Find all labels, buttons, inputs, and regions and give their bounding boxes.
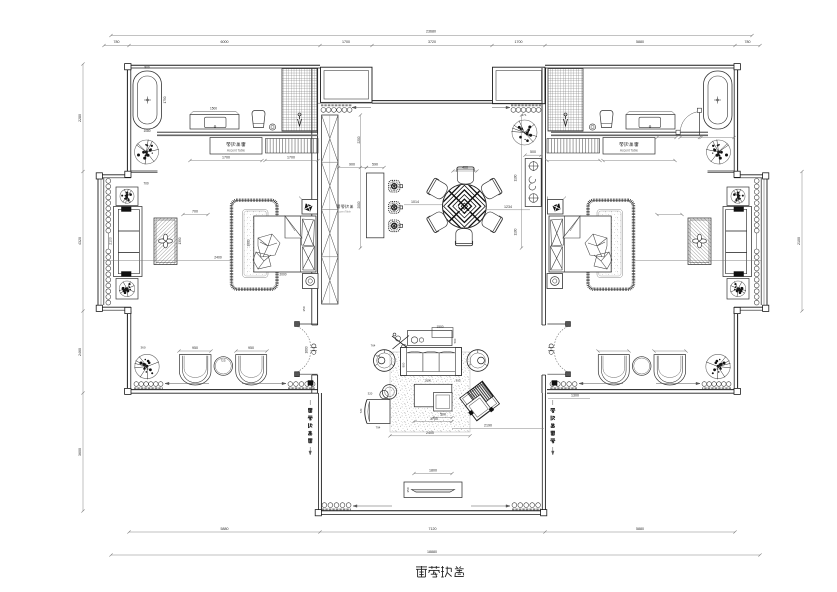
svg-text:6000: 6000	[221, 40, 229, 44]
svg-text:720: 720	[359, 408, 363, 413]
svg-text:360: 360	[140, 346, 145, 350]
svg-text:800: 800	[144, 66, 150, 70]
svg-text:950: 950	[248, 346, 254, 350]
svg-text:23680: 23680	[426, 30, 436, 34]
svg-text:2000: 2000	[279, 273, 286, 277]
svg-text:1500: 1500	[210, 107, 217, 111]
svg-text:2460: 2460	[78, 348, 82, 356]
svg-text:700: 700	[143, 182, 149, 186]
svg-text:1500: 1500	[436, 325, 443, 329]
svg-text:4320: 4320	[78, 237, 82, 245]
svg-text:1700: 1700	[515, 40, 523, 44]
svg-text:764: 764	[371, 344, 376, 348]
svg-text:Accent Table: Accent Table	[620, 149, 638, 153]
svg-text:1100: 1100	[514, 228, 518, 235]
svg-text:725: 725	[220, 359, 225, 363]
svg-text:18880: 18880	[427, 550, 437, 554]
svg-text:350: 350	[406, 487, 410, 492]
svg-text:500: 500	[453, 338, 457, 343]
svg-text:300: 300	[456, 379, 461, 383]
svg-text:5880: 5880	[221, 527, 229, 531]
svg-text:2100: 2100	[797, 237, 801, 245]
svg-text:1234: 1234	[504, 205, 512, 209]
svg-text:780: 780	[114, 40, 120, 44]
svg-text:1080: 1080	[143, 129, 150, 133]
svg-text:Accent Table: Accent Table	[337, 211, 351, 214]
svg-text:2000: 2000	[357, 201, 361, 208]
svg-text:371: 371	[521, 113, 526, 117]
svg-text:1700: 1700	[342, 40, 350, 44]
svg-text:5880: 5880	[636, 527, 644, 531]
svg-text:1100: 1100	[514, 174, 518, 181]
svg-text:1700: 1700	[430, 417, 438, 421]
svg-text:794: 794	[376, 426, 381, 430]
svg-text:2280: 2280	[78, 114, 82, 122]
svg-text:950: 950	[192, 346, 198, 350]
svg-text:1700: 1700	[287, 156, 295, 160]
svg-text:1800: 1800	[247, 239, 251, 246]
svg-text:2100: 2100	[109, 237, 113, 245]
svg-text:500: 500	[440, 413, 446, 417]
svg-text:780: 780	[745, 40, 751, 44]
svg-text:590: 590	[372, 163, 378, 167]
svg-text:1700: 1700	[222, 156, 230, 160]
svg-text:350: 350	[302, 306, 306, 311]
svg-text:1800: 1800	[429, 469, 437, 473]
svg-text:500: 500	[530, 150, 536, 154]
svg-text:900: 900	[349, 163, 355, 167]
svg-text:7120: 7120	[429, 527, 437, 531]
svg-text:1300: 1300	[571, 394, 579, 398]
svg-text:1014: 1014	[411, 200, 419, 204]
svg-text:1750: 1750	[163, 96, 167, 103]
svg-text:764: 764	[376, 354, 381, 358]
svg-text:3600: 3600	[78, 448, 82, 456]
svg-text:320: 320	[368, 392, 373, 396]
svg-text:Accent Table: Accent Table	[227, 149, 245, 153]
svg-text:1350: 1350	[178, 237, 182, 244]
svg-text:2400: 2400	[214, 256, 222, 260]
svg-text:3720: 3720	[428, 40, 436, 44]
svg-text:2200: 2200	[357, 136, 361, 143]
svg-text:2000: 2000	[425, 379, 432, 383]
svg-text:400: 400	[462, 166, 468, 170]
svg-text:5880: 5880	[636, 40, 644, 44]
svg-text:2400: 2400	[426, 431, 434, 435]
svg-text:900: 900	[402, 362, 406, 367]
svg-text:2190: 2190	[484, 424, 492, 428]
svg-text:700: 700	[192, 210, 198, 214]
svg-text:1600: 1600	[305, 346, 309, 353]
